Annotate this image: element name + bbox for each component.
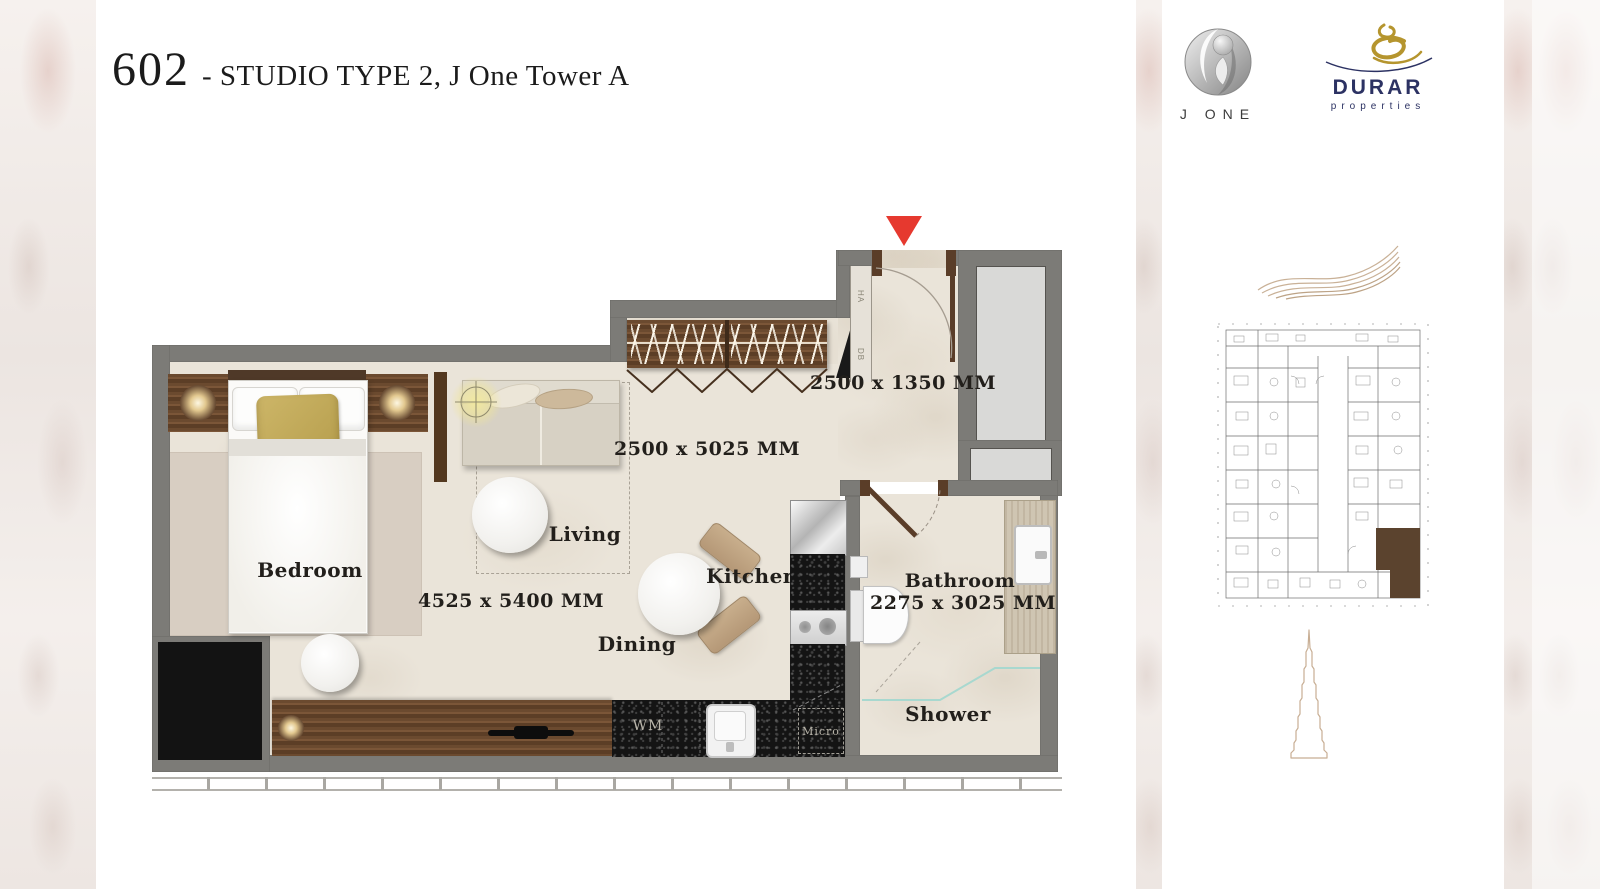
db-label: DB [856, 348, 865, 361]
wardrobe-hangers-left [631, 324, 723, 364]
page-title-text: - STUDIO TYPE 2, J One Tower A [202, 60, 630, 93]
entry-utility-closet: HA DB [850, 266, 872, 382]
room-label-shower: Shower [888, 702, 1008, 726]
dim-label-bathroom: 2275 x 3025 MM [870, 592, 1050, 614]
wall-lobby-top-left [838, 250, 874, 266]
kitchen-sink-basin [714, 711, 746, 741]
bath-door-jamb-left [860, 480, 870, 496]
washing-machine-label: WM [622, 718, 674, 734]
bed-duvet [229, 456, 366, 632]
entry-door-jamb-left [872, 250, 882, 276]
floor-lamp-glow [450, 376, 502, 428]
wardrobe-divider [725, 320, 729, 368]
tv-body [514, 726, 548, 739]
room-label-bathroom: Bathroom [880, 570, 1040, 592]
room-label-living: Living [540, 522, 630, 546]
bed [228, 380, 368, 634]
room-label-kitchen: Kitchen [706, 564, 798, 588]
wardrobe-hangers-right [731, 324, 823, 364]
durar-logo: DURAR properties [1316, 20, 1440, 126]
kitchen-counter-upper [790, 554, 845, 610]
kitchen-faucet [726, 742, 734, 752]
room-label-dining: Dining [592, 632, 682, 656]
kitchen-sink [706, 704, 756, 758]
window-mullions [152, 777, 1062, 790]
marble-border-right [1504, 0, 1532, 889]
tv-unit [158, 642, 262, 760]
coffee-table [472, 477, 548, 553]
nightstand-right [366, 374, 428, 432]
sofa-side-panel [434, 372, 447, 482]
entry-door-gap-floor [882, 250, 946, 268]
bath-door-jamb-right [938, 480, 948, 496]
marble-border-left [0, 0, 96, 889]
jone-logo-text: J ONE [1170, 106, 1266, 122]
console-lamp [278, 715, 304, 741]
wall-bath-top-right [946, 480, 1058, 496]
unit-highlight [1376, 528, 1420, 598]
marble-divider [1136, 0, 1162, 889]
stove-burner-2 [819, 618, 836, 635]
nightstand-left [168, 374, 228, 432]
dim-label-bedroom-area: 4525 x 5400 MM [418, 590, 603, 612]
service-shaft-inner [976, 266, 1046, 444]
jone-logo-icon [1170, 22, 1266, 102]
unit-number: 602 [112, 42, 190, 97]
microwave-box: Micro [798, 708, 844, 754]
vanity-faucet [1035, 551, 1047, 559]
bed-fold [229, 439, 366, 457]
tv-console [272, 700, 612, 756]
wardrobe [627, 320, 827, 368]
ha-label: HA [856, 290, 865, 303]
jone-logo: J ONE [1170, 22, 1266, 126]
fridge [790, 500, 847, 556]
durar-logo-text: DURAR [1316, 76, 1440, 100]
entry-door-leaf [950, 262, 955, 362]
bedside-lamp-left [180, 385, 216, 421]
page-title: 602 - STUDIO TYPE 2, J One Tower A [112, 42, 630, 97]
sofa-seat-divider [540, 403, 542, 465]
stove-burner-1 [799, 621, 811, 633]
durar-logo-icon [1316, 20, 1440, 76]
bedroom-stool [301, 634, 359, 692]
microwave-label: Micro [802, 725, 840, 738]
toilet-paper-holder [850, 556, 868, 578]
room-label-bedroom: Bedroom [250, 558, 370, 582]
dim-label-living: 2500 x 5025 MM [612, 438, 802, 460]
marble-border-right-wash [1532, 0, 1600, 889]
entrance-arrow-icon [886, 216, 922, 246]
wall-top-bedroom [152, 345, 627, 362]
dim-label-entry: 2500 x 1350 MM [810, 372, 990, 394]
floorplan-page: 602 - STUDIO TYPE 2, J One Tower A J ONE [0, 0, 1600, 889]
wall-bottom [152, 755, 1058, 772]
durar-logo-tagline: properties [1316, 101, 1440, 112]
wall-top-wardrobe [610, 300, 850, 318]
stove [790, 610, 847, 646]
bedside-lamp-right [379, 385, 415, 421]
